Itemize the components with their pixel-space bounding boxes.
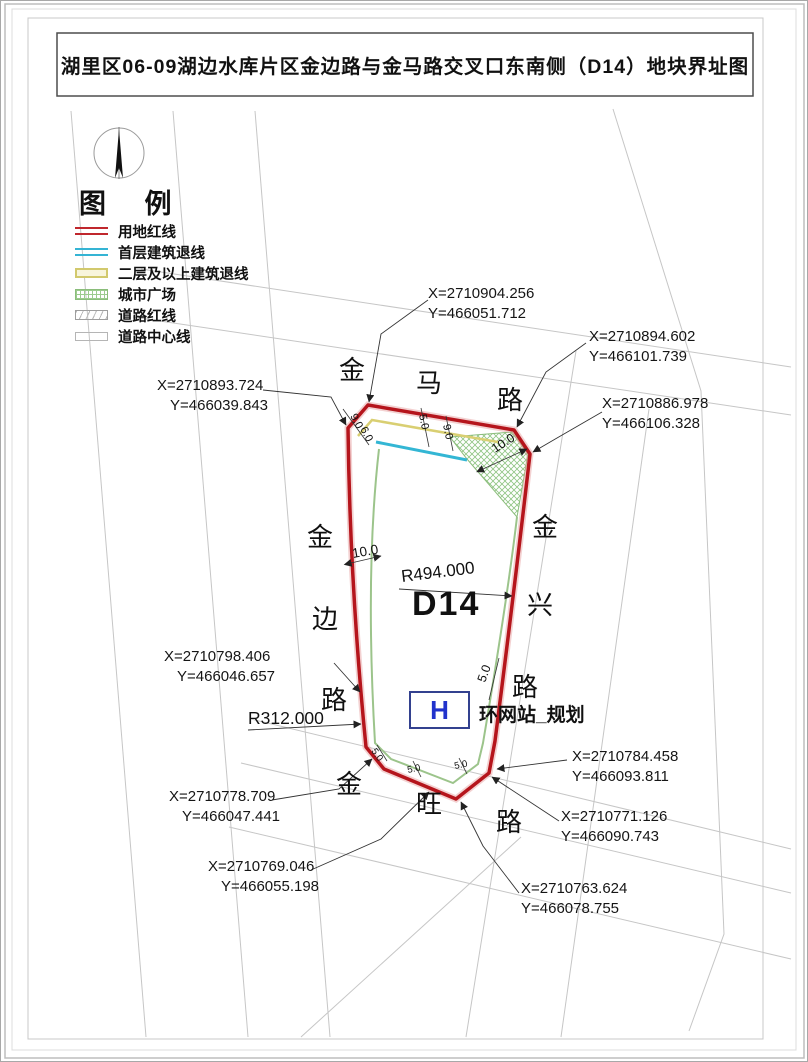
coord-x: X=2710893.724 <box>157 376 268 396</box>
coord-label: X=2710893.724 Y=466039.843 <box>157 376 268 415</box>
coord-y: Y=466090.743 <box>561 827 667 847</box>
coord-label: X=2710771.126 Y=466090.743 <box>561 807 667 846</box>
legend-label: 用地红线 <box>118 221 176 242</box>
road-name-bottom-char: 金 <box>336 771 362 797</box>
station-name-label: 环网站_规划 <box>479 700 585 727</box>
coord-label: X=2710894.602 Y=466101.739 <box>589 327 695 366</box>
coord-label: X=2710904.256 Y=466051.712 <box>428 284 534 323</box>
coord-x: X=2710886.978 <box>602 394 708 414</box>
yellow-line-swatch-icon <box>75 268 108 278</box>
coord-x: X=2710769.046 <box>208 857 319 877</box>
map-drawing: R494.000 R312.000 10.0 5.0 10.0 9.0 6.0 … <box>1 1 808 1062</box>
coord-y: Y=466046.657 <box>164 667 275 687</box>
parcel-id-label: D14 <box>412 585 480 624</box>
radius-right-label: R494.000 <box>400 558 476 586</box>
road-centerline-swatch-icon <box>75 332 108 341</box>
coord-y: Y=466101.739 <box>589 347 695 367</box>
coord-x: X=2710784.458 <box>572 747 678 767</box>
redline-swatch-icon <box>75 227 108 235</box>
coord-x: X=2710904.256 <box>428 284 534 304</box>
dim-top-cyan: 9.0 <box>440 423 455 440</box>
radius-left-label: R312.000 <box>248 708 324 728</box>
coord-y: Y=466106.328 <box>602 414 708 434</box>
legend-item-road-redline: 道路红线 <box>75 309 249 321</box>
coord-y: Y=466078.755 <box>521 899 627 919</box>
legend-item-upper-floor-setback: 二层及以上建筑退线 <box>75 267 249 279</box>
legend-label: 二层及以上建筑退线 <box>118 263 249 284</box>
legend-label: 城市广场 <box>118 284 176 305</box>
coord-y: Y=466055.198 <box>208 877 319 897</box>
coord-label: X=2710769.046 Y=466055.198 <box>208 857 319 896</box>
coord-label: X=2710763.624 Y=466078.755 <box>521 879 627 918</box>
coord-label: X=2710886.978 Y=466106.328 <box>602 394 708 433</box>
coord-x: X=2710771.126 <box>561 807 667 827</box>
legend: 用地红线 首层建筑退线 二层及以上建筑退线 城市广场 道路红线 道路中心线 <box>75 225 249 342</box>
coord-label: X=2710784.458 Y=466093.811 <box>572 747 678 786</box>
coord-y: Y=466093.811 <box>572 767 678 787</box>
road-name-left-char: 路 <box>321 687 347 713</box>
road-name-right-char: 路 <box>512 674 538 700</box>
road-redline-swatch-icon <box>75 310 108 320</box>
road-name-left-char: 边 <box>312 606 338 632</box>
station-symbol-box: H <box>409 691 470 729</box>
road-name-right-char: 金 <box>532 514 558 540</box>
sheet-frames <box>5 4 804 1058</box>
coord-y: Y=466051.712 <box>428 304 534 324</box>
cyan-line-swatch-icon <box>75 248 108 256</box>
road-name-bottom-char: 路 <box>496 809 522 835</box>
road-name-top-char: 路 <box>497 387 523 413</box>
coord-x: X=2710798.406 <box>164 647 275 667</box>
coord-x: X=2710894.602 <box>589 327 695 347</box>
road-name-right-char: 兴 <box>527 592 553 618</box>
legend-item-redline: 用地红线 <box>75 225 249 237</box>
legend-label: 道路中心线 <box>118 326 191 347</box>
coord-y: Y=466039.843 <box>157 396 268 416</box>
dim-left-setback: 10.0 <box>351 542 379 561</box>
first-floor-setback-line <box>376 442 467 460</box>
dim-right-setback: 5.0 <box>475 663 494 684</box>
plaza-hatch-swatch-icon <box>75 289 108 300</box>
legend-label: 首层建筑退线 <box>118 242 205 263</box>
legend-item-road-centerline: 道路中心线 <box>75 330 249 342</box>
page-title: 湖里区06-09湖边水库片区金边路与金马路交叉口东南侧（D14）地块界址图 <box>58 34 752 95</box>
road-name-left-char: 金 <box>307 524 333 550</box>
coord-x: X=2710763.624 <box>521 879 627 899</box>
road-name-bottom-char: 旺 <box>416 791 442 817</box>
coord-label: X=2710798.406 Y=466046.657 <box>164 647 275 686</box>
coord-y: Y=466047.441 <box>169 807 280 827</box>
legend-item-city-plaza: 城市广场 <box>75 288 249 300</box>
cadastral-map-sheet: R494.000 R312.000 10.0 5.0 10.0 9.0 6.0 … <box>0 0 808 1062</box>
coord-x: X=2710778.709 <box>169 787 280 807</box>
legend-label: 道路红线 <box>118 305 176 326</box>
road-name-top-char: 金 <box>339 357 365 383</box>
legend-heading: 图 例 <box>79 182 174 221</box>
road-name-top-char: 马 <box>416 370 442 396</box>
legend-item-first-floor-setback: 首层建筑退线 <box>75 246 249 258</box>
station-symbol: H <box>430 697 449 723</box>
dim-bottom-c: 5.0 <box>453 758 468 772</box>
north-arrow-icon <box>94 127 144 179</box>
coord-label: X=2710778.709 Y=466047.441 <box>169 787 280 826</box>
